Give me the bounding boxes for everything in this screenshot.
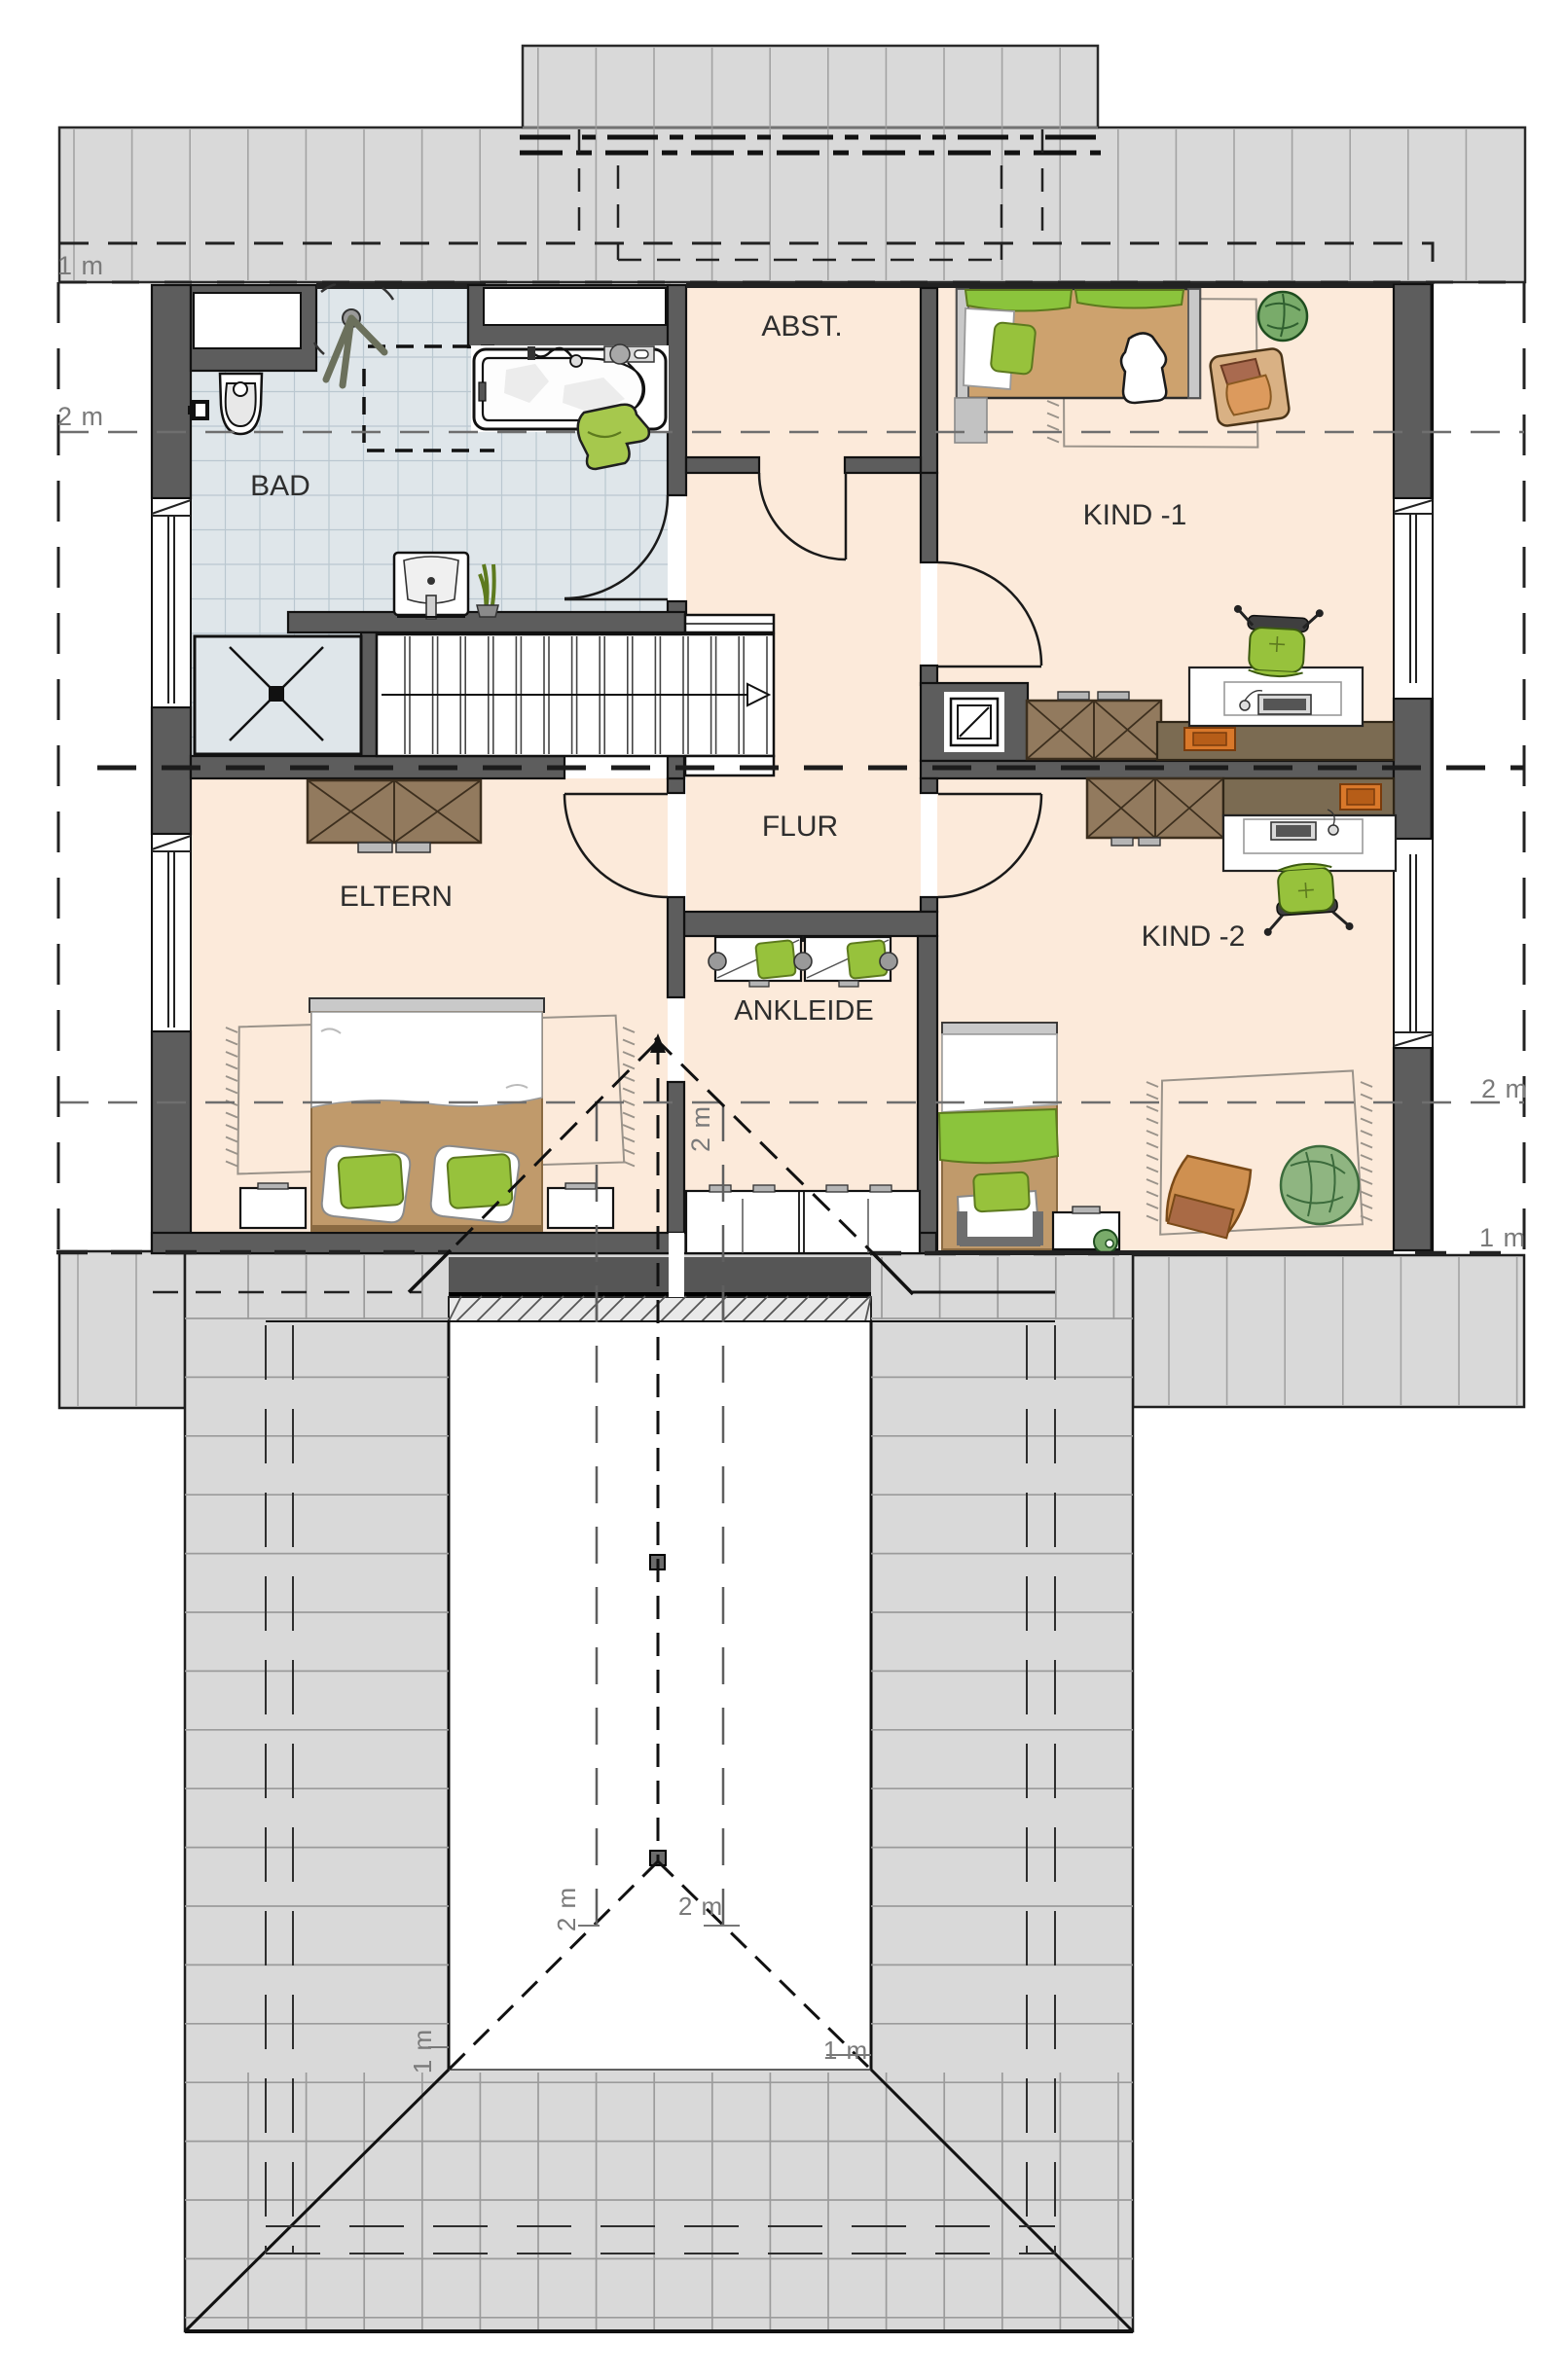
svg-text:1 m: 1 m: [823, 2036, 868, 2065]
svg-text:2 m: 2 m: [678, 1892, 723, 1921]
svg-text:1 m: 1 m: [1479, 1223, 1526, 1252]
svg-text:1 m: 1 m: [57, 251, 104, 280]
svg-text:ANKLEIDE: ANKLEIDE: [734, 995, 873, 1027]
svg-text:BAD: BAD: [250, 470, 310, 502]
svg-text:2 m: 2 m: [552, 1887, 581, 1931]
svg-text:ABST.: ABST.: [761, 310, 842, 343]
svg-text:FLUR: FLUR: [762, 811, 838, 843]
svg-text:2 m: 2 m: [686, 1105, 715, 1152]
svg-text:2 m: 2 m: [1481, 1074, 1528, 1103]
svg-text:KIND -2: KIND -2: [1142, 920, 1246, 953]
svg-text:ELTERN: ELTERN: [340, 881, 453, 913]
svg-text:KIND -1: KIND -1: [1083, 499, 1187, 531]
svg-text:1 m: 1 m: [408, 2029, 437, 2073]
svg-text:2 m: 2 m: [57, 402, 104, 431]
